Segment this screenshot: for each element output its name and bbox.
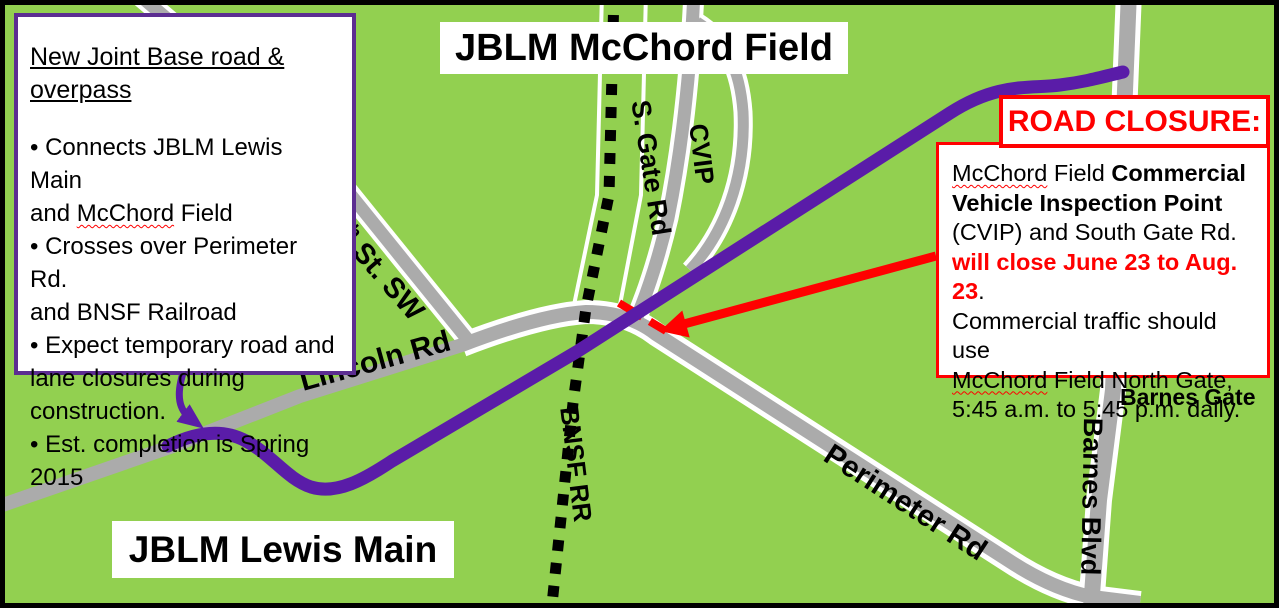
barnes-blvd-label: Barnes Blvd bbox=[1074, 417, 1108, 575]
info-box-title: New Joint Base road & overpass bbox=[30, 41, 341, 107]
jblm-road-closure-map: JBLM McChord Field JBLM Lewis Main New J… bbox=[0, 0, 1279, 608]
mcchord-field-label: JBLM McChord Field bbox=[440, 22, 848, 74]
info-box: New Joint Base road & overpass • Connect… bbox=[14, 13, 356, 375]
lewis-main-label: JBLM Lewis Main bbox=[112, 521, 454, 578]
info-box-bullets: • Connects JBLM Lewis Mainand McChord Fi… bbox=[30, 131, 341, 494]
road-closure-body: McChord Field CommercialVehicle Inspecti… bbox=[936, 142, 1270, 378]
road-closure-header: ROAD CLOSURE: bbox=[999, 95, 1270, 148]
